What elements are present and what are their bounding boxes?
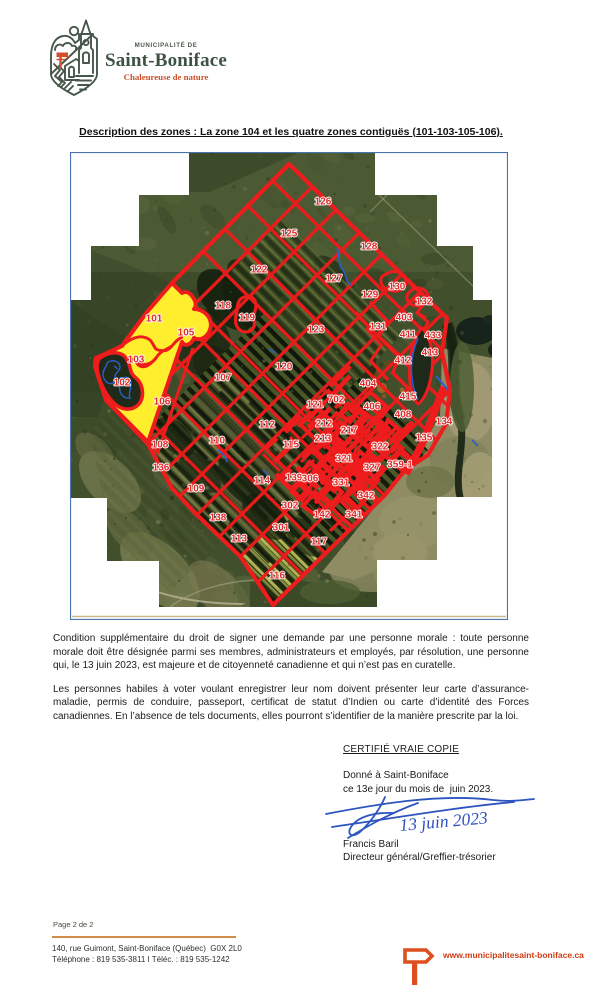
svg-text:341: 341 bbox=[346, 510, 363, 521]
svg-text:115: 115 bbox=[283, 440, 300, 451]
svg-text:132: 132 bbox=[416, 297, 433, 308]
svg-text:121: 121 bbox=[307, 400, 324, 411]
svg-text:412: 412 bbox=[395, 356, 412, 367]
svg-text:119: 119 bbox=[239, 313, 256, 324]
svg-text:127: 127 bbox=[326, 274, 343, 285]
svg-text:136: 136 bbox=[153, 463, 170, 474]
svg-text:107: 107 bbox=[215, 373, 232, 384]
svg-text:413: 413 bbox=[422, 348, 439, 359]
svg-text:105: 105 bbox=[178, 328, 195, 339]
svg-text:110: 110 bbox=[209, 436, 226, 447]
svg-text:433: 433 bbox=[425, 331, 442, 342]
svg-text:123: 123 bbox=[308, 325, 325, 336]
svg-text:116: 116 bbox=[269, 571, 286, 582]
svg-text:404: 404 bbox=[360, 379, 377, 390]
svg-text:411: 411 bbox=[400, 330, 417, 341]
svg-text:142: 142 bbox=[314, 510, 331, 521]
svg-text:128: 128 bbox=[361, 242, 378, 253]
svg-text:129: 129 bbox=[362, 290, 379, 301]
svg-text:306: 306 bbox=[302, 474, 319, 485]
svg-text:112: 112 bbox=[259, 420, 276, 431]
svg-text:217: 217 bbox=[341, 426, 358, 437]
svg-text:213: 213 bbox=[315, 434, 332, 445]
svg-text:135: 135 bbox=[416, 433, 433, 444]
svg-text:126: 126 bbox=[315, 197, 332, 208]
svg-text:117: 117 bbox=[311, 537, 328, 548]
svg-text:408: 408 bbox=[395, 410, 412, 421]
svg-text:702: 702 bbox=[328, 395, 345, 406]
svg-text:108: 108 bbox=[152, 440, 169, 451]
svg-text:118: 118 bbox=[215, 301, 232, 312]
svg-text:138: 138 bbox=[210, 513, 227, 524]
svg-text:403: 403 bbox=[396, 313, 413, 324]
svg-text:101: 101 bbox=[146, 314, 163, 325]
svg-text:321: 321 bbox=[336, 454, 353, 465]
svg-text:114: 114 bbox=[254, 476, 271, 487]
svg-text:415: 415 bbox=[400, 392, 417, 403]
svg-text:359-1: 359-1 bbox=[387, 460, 413, 471]
svg-text:301: 301 bbox=[273, 523, 290, 534]
svg-text:134: 134 bbox=[436, 417, 453, 428]
svg-text:331: 331 bbox=[333, 478, 350, 489]
svg-text:327: 327 bbox=[364, 463, 381, 474]
svg-text:342: 342 bbox=[358, 491, 375, 502]
svg-text:130: 130 bbox=[389, 282, 406, 293]
svg-text:102: 102 bbox=[114, 378, 131, 389]
svg-text:106: 106 bbox=[154, 397, 171, 408]
svg-text:131: 131 bbox=[370, 322, 387, 333]
svg-text:120: 120 bbox=[276, 362, 293, 373]
svg-text:13 juin 2023: 13 juin 2023 bbox=[399, 807, 489, 835]
svg-text:103: 103 bbox=[128, 355, 145, 366]
svg-text:109: 109 bbox=[188, 484, 205, 495]
svg-text:122: 122 bbox=[251, 265, 268, 276]
svg-text:406: 406 bbox=[364, 402, 381, 413]
svg-text:113: 113 bbox=[231, 534, 248, 545]
svg-text:125: 125 bbox=[281, 229, 298, 240]
svg-text:212: 212 bbox=[316, 419, 333, 430]
svg-text:322: 322 bbox=[372, 442, 389, 453]
svg-text:139: 139 bbox=[286, 473, 303, 484]
svg-text:302: 302 bbox=[282, 501, 299, 512]
